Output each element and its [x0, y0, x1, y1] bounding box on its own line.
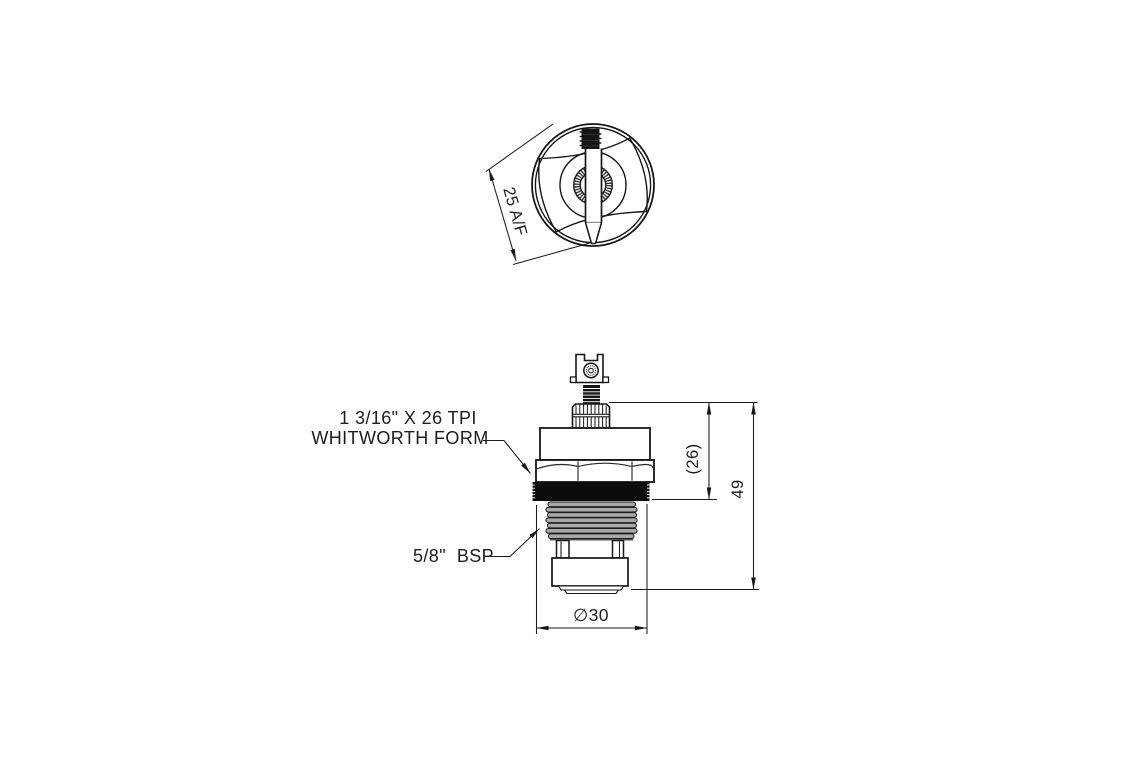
head-tab-right	[603, 377, 609, 383]
knurled-stem-top	[580, 129, 602, 150]
dim-dia30-text: ∅30	[573, 605, 609, 625]
bsp-leader	[487, 529, 540, 557]
annotation-thread-spec: 1 3/16" X 26 TPI WHITWORTH FORM	[311, 408, 530, 474]
hex-nut	[536, 460, 654, 482]
dim-25af-ext-bottom	[513, 243, 590, 265]
dim-26-text: (26)	[684, 444, 702, 475]
bsp-thread	[546, 502, 637, 540]
tap-valve-engineering-drawing: 25 A/F	[0, 0, 1140, 760]
dim-25af-ext-top	[486, 124, 553, 172]
dim-49-text: 49	[729, 479, 747, 498]
jumper-posts	[557, 541, 624, 559]
knurled-adjuster	[573, 404, 610, 428]
slot-backing	[586, 149, 601, 223]
bsp-label: 5/8" BSP	[413, 546, 494, 566]
dim-upper-height: (26)	[684, 403, 709, 500]
thread-spec-leader	[483, 441, 531, 474]
top-view: 25 A/F	[486, 124, 656, 265]
seal-washer	[533, 482, 650, 501]
threaded-spindle-stem	[583, 385, 600, 404]
head-tab-left	[571, 377, 577, 383]
spindle-head	[571, 355, 609, 383]
dim-25af-text: 25 A/F	[499, 185, 530, 238]
front-view: (26) 49 ∅30 1 3/16" X 26 TPI WHITWORTH F…	[311, 355, 759, 635]
thread-spec-line2: WHITWORTH FORM	[311, 428, 488, 448]
bonnet-body	[540, 428, 650, 460]
thread-spec-line1: 1 3/16" X 26 TPI	[339, 408, 477, 428]
dim-overall-height: 49	[729, 403, 754, 590]
washer-cup	[552, 558, 628, 586]
annotation-bsp: 5/8" BSP	[413, 529, 540, 567]
tap-washer	[559, 586, 624, 594]
blade-taper	[586, 223, 602, 244]
